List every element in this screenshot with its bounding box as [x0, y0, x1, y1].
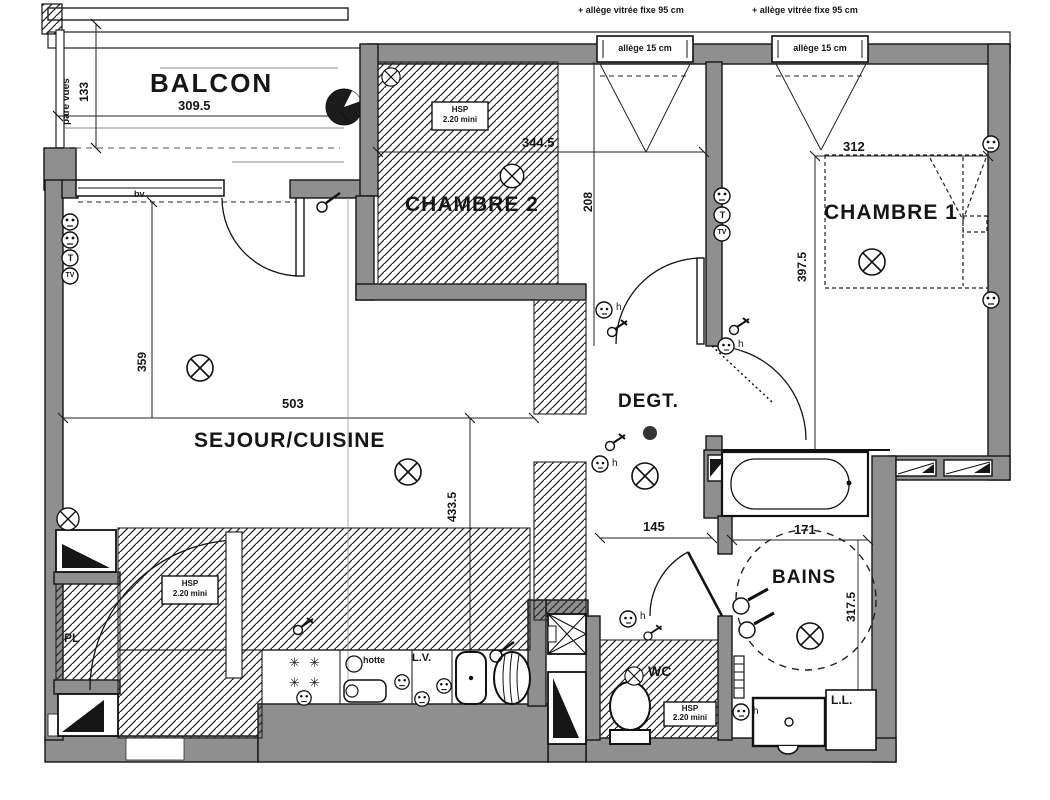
- room-label-wc: WC: [648, 664, 671, 678]
- facade-note-left: + allège vitrée fixe 95 cm: [578, 6, 684, 15]
- wall-light-h-tag: h: [738, 340, 744, 350]
- chambre1-depth-dim: 397.5: [796, 252, 808, 282]
- pie-marker: [326, 89, 362, 125]
- tv-socket-icon: TV: [62, 272, 78, 279]
- washer-label: L.L.: [831, 694, 852, 706]
- privacy-screen-label: pare vues: [62, 78, 72, 125]
- chambre2-ceiling-note-1: HSP: [432, 106, 488, 114]
- chambre2-depth-dim: 208: [582, 192, 594, 212]
- room-label-degt: DEGT.: [618, 392, 679, 411]
- closet-label: PL: [64, 632, 79, 644]
- wall-light-h-tag: h: [612, 459, 618, 469]
- burner-icon: ✳: [309, 656, 320, 669]
- dishwasher-label: L.V.: [412, 653, 431, 664]
- burner-icon: ✳: [289, 656, 300, 669]
- window-left-label: allège 15 cm: [597, 44, 693, 53]
- chambre2-width-dim: 344.5: [522, 136, 555, 149]
- sejour-depth-left-dim: 359: [136, 352, 148, 372]
- balcony-depth-dim: 133: [78, 82, 90, 102]
- entry-ceiling-note-1: HSP: [162, 580, 218, 588]
- wc-ceiling-note-1: HSP: [664, 705, 716, 713]
- duct-symbol: [548, 614, 586, 654]
- phone-socket-icon: T: [715, 211, 730, 220]
- bathtub: [722, 452, 868, 516]
- bay-window-label: bv: [134, 190, 145, 199]
- chambre1-width-dim: 312: [843, 140, 865, 153]
- floor-plan: BALCON 309.5 133 pare vues + allège vitr…: [0, 0, 1050, 800]
- plan-linework: [0, 0, 1050, 800]
- sejour-depth-right-dim: 433.5: [446, 492, 458, 522]
- wall-light-h-tag: h: [616, 303, 622, 313]
- balcony-width-dim: 309.5: [178, 99, 211, 112]
- washbasin: [753, 698, 825, 754]
- sejour-width-dim: 503: [282, 397, 304, 410]
- room-label-chambre1: CHAMBRE 1: [824, 202, 958, 223]
- bains-width-dim: 171: [794, 523, 816, 536]
- facade-note-right: + allège vitrée fixe 95 cm: [752, 6, 858, 15]
- room-label-sejour: SEJOUR/CUISINE: [194, 430, 385, 451]
- room-label-chambre2: CHAMBRE 2: [405, 194, 539, 215]
- bains-depth-dim: 317.5: [845, 592, 857, 622]
- tv-socket-icon: TV: [714, 229, 730, 236]
- window-right-label: allège 15 cm: [772, 44, 868, 53]
- degt-width-dim: 145: [643, 520, 665, 533]
- burner-icon: ✳: [289, 676, 300, 689]
- burner-icon: ✳: [309, 676, 320, 689]
- balcony-label: BALCON: [150, 70, 273, 96]
- wall-light-h-tag: h: [640, 612, 646, 622]
- hood-label: hotte: [363, 656, 385, 665]
- bath-taps: [733, 589, 774, 638]
- entry-threshold: [126, 738, 184, 760]
- towel-radiator: [734, 656, 744, 698]
- chambre2-ceiling-note-2: 2.20 mini: [432, 116, 488, 124]
- phone-socket-icon: T: [63, 254, 78, 263]
- toilet: [610, 682, 650, 744]
- wall-light-h-tag: h: [753, 707, 759, 717]
- smoke-detector-dot: [643, 426, 657, 440]
- wc-ceiling-note-2: 2.20 mini: [664, 714, 716, 722]
- room-label-bains: BAINS: [772, 568, 836, 587]
- entry-ceiling-note-2: 2.20 mini: [162, 590, 218, 598]
